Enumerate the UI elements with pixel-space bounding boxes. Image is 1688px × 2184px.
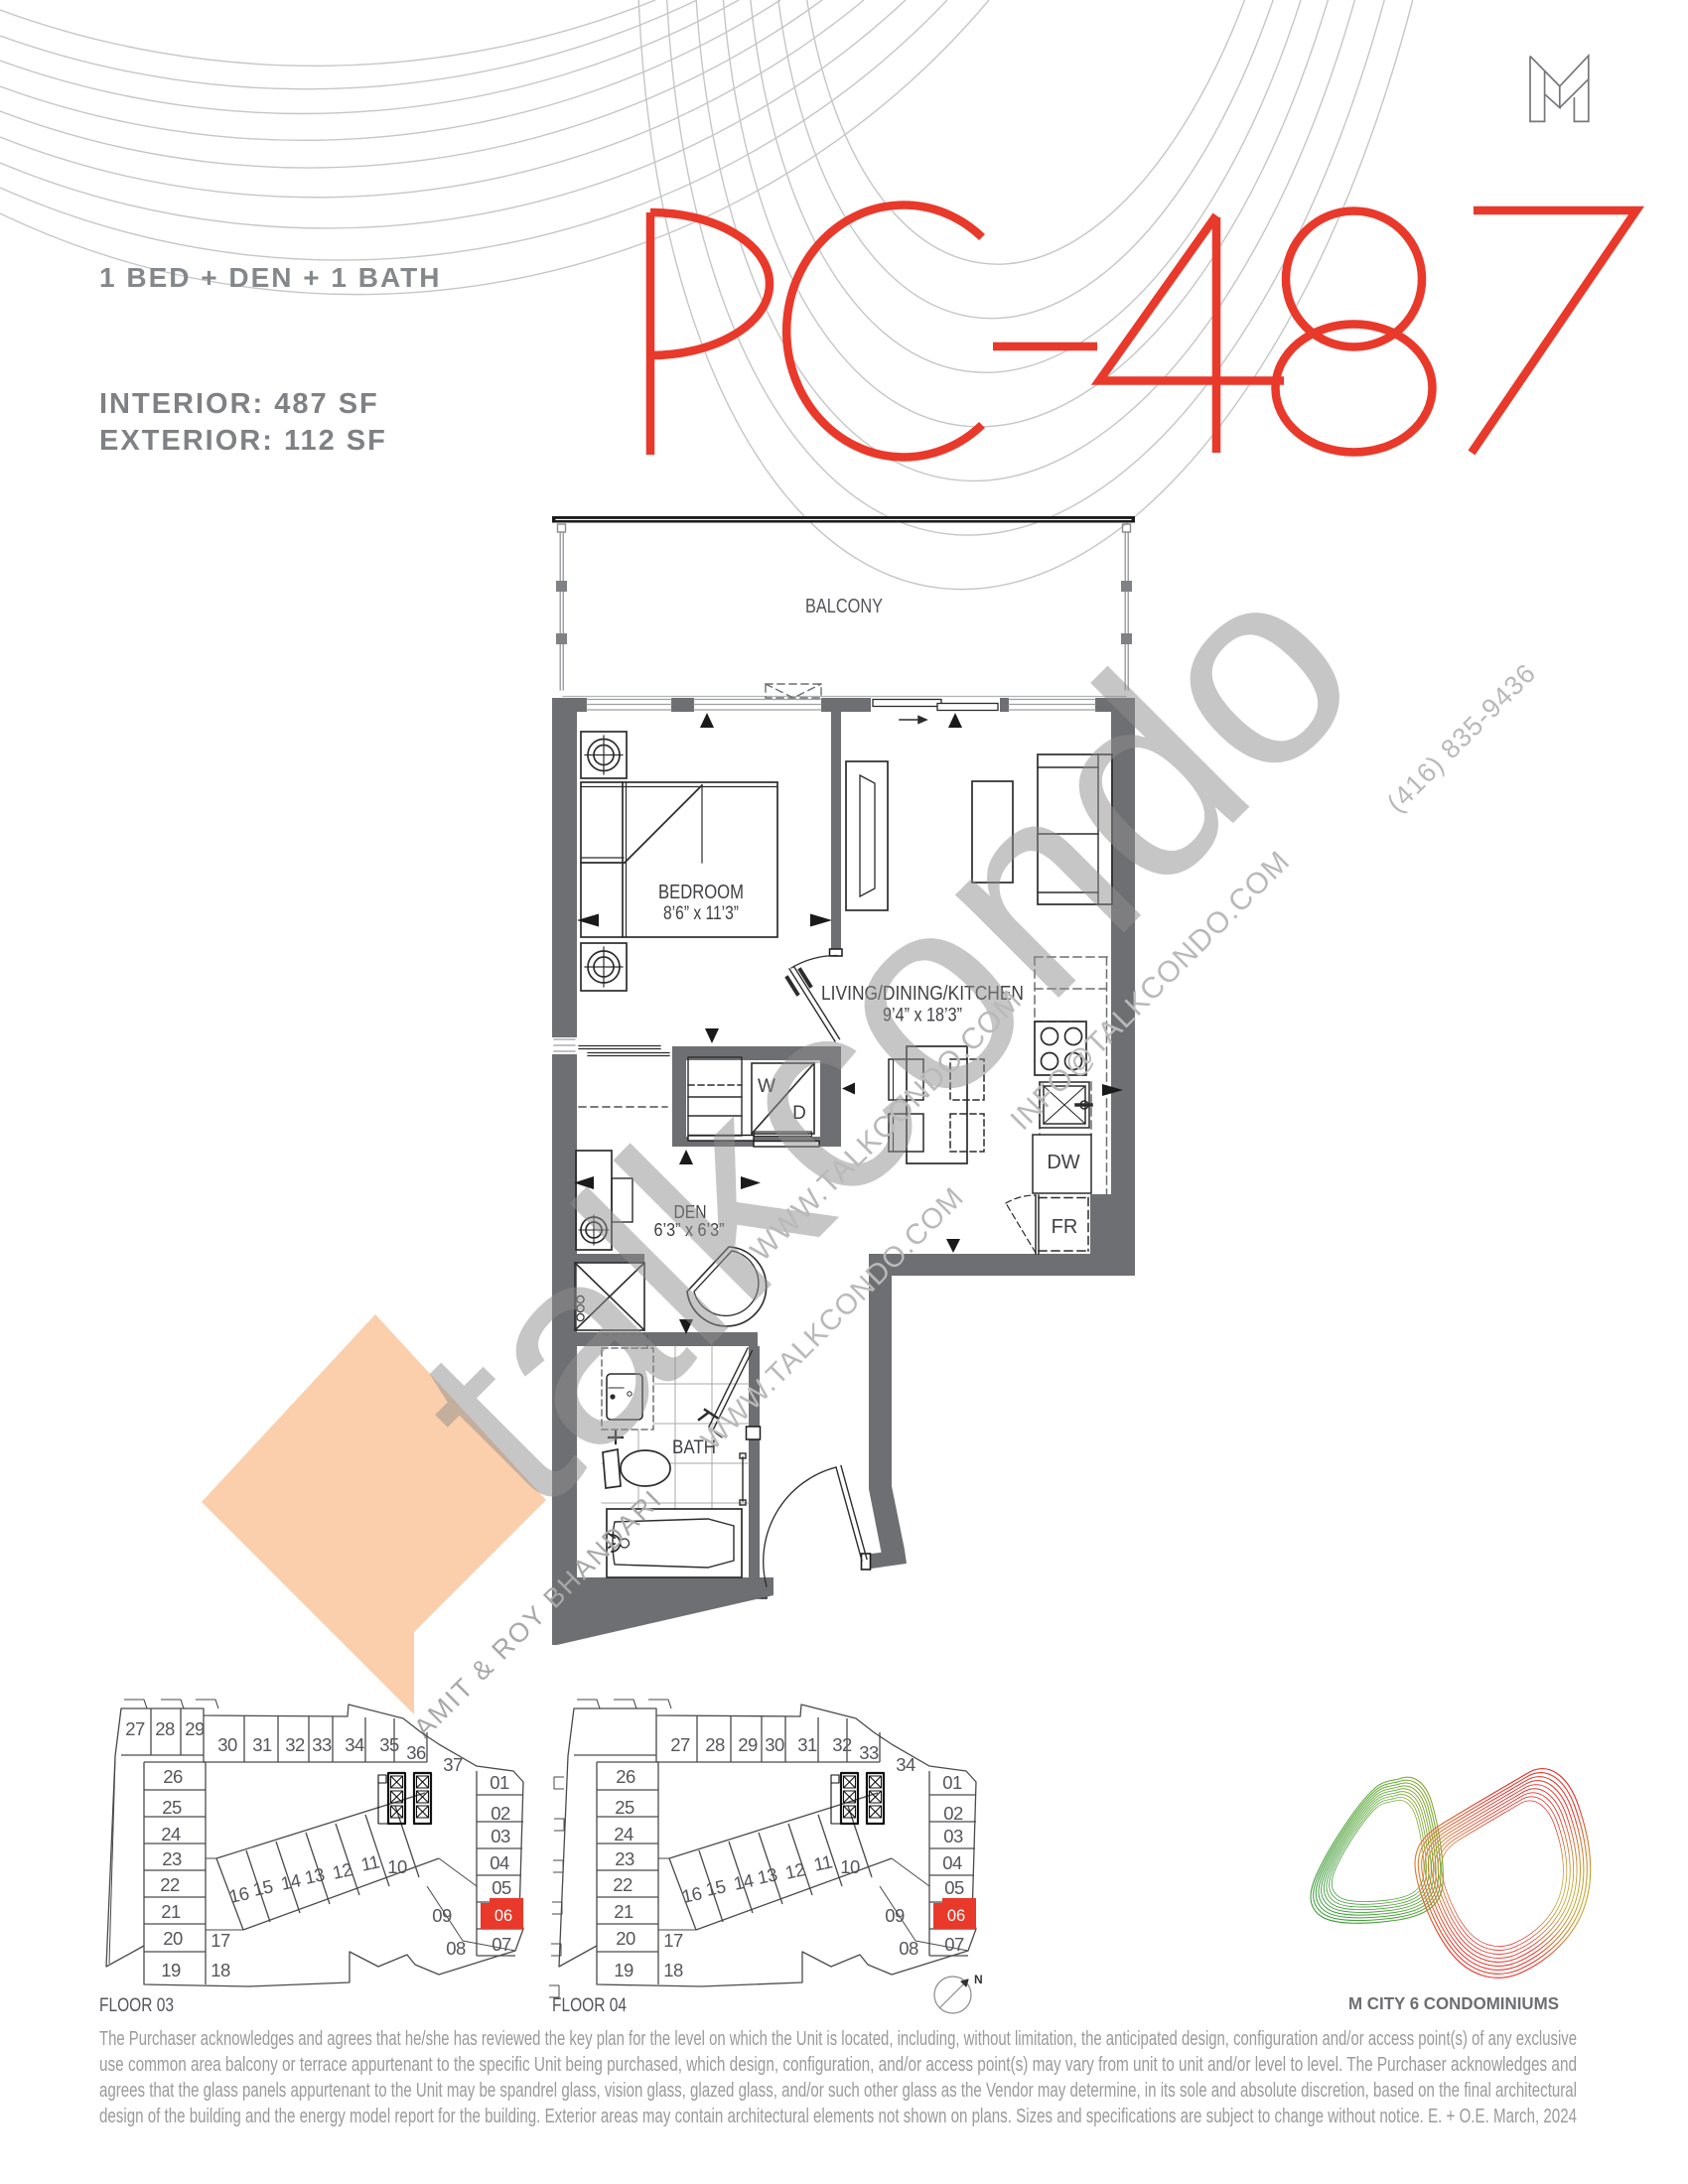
svg-text:21: 21	[614, 1901, 633, 1922]
svg-text:01: 01	[490, 1772, 509, 1793]
svg-text:use common area balcony or ter: use common area balcony or terrace appur…	[99, 2053, 1577, 2076]
svg-text:agrees that the glass panels a: agrees that the glass panels appurtenant…	[99, 2079, 1577, 2102]
svg-text:27: 27	[670, 1734, 690, 1755]
svg-text:29: 29	[738, 1734, 758, 1755]
svg-text:32: 32	[832, 1734, 852, 1755]
svg-text:8’6” x 11’3”: 8’6” x 11’3”	[663, 902, 739, 924]
svg-text:03: 03	[491, 1826, 510, 1846]
svg-text:19: 19	[614, 1960, 633, 1980]
svg-text:25: 25	[162, 1797, 182, 1818]
svg-text:19: 19	[161, 1960, 181, 1980]
svg-text:07: 07	[944, 1934, 964, 1955]
svg-text:07: 07	[492, 1934, 511, 1955]
svg-text:03: 03	[943, 1826, 963, 1846]
svg-text:34: 34	[345, 1734, 364, 1755]
svg-text:INTERIOR: 487 SF: INTERIOR: 487 SF	[99, 388, 379, 420]
svg-text:26: 26	[616, 1766, 635, 1787]
svg-text:25: 25	[615, 1797, 634, 1818]
svg-text:28: 28	[155, 1718, 175, 1739]
svg-text:31: 31	[252, 1734, 272, 1755]
svg-text:22: 22	[613, 1874, 633, 1895]
svg-text:N: N	[974, 1973, 983, 1986]
svg-text:EXTERIOR: 112 SF: EXTERIOR: 112 SF	[99, 425, 387, 457]
svg-text:BALCONY: BALCONY	[805, 596, 883, 617]
svg-text:30: 30	[765, 1734, 784, 1755]
svg-text:18: 18	[211, 1960, 230, 1980]
svg-text:FLOOR 04: FLOOR 04	[552, 1994, 627, 2016]
svg-text:29: 29	[185, 1718, 205, 1739]
svg-text:37: 37	[443, 1754, 463, 1775]
svg-text:34: 34	[896, 1754, 915, 1775]
svg-text:22: 22	[160, 1874, 180, 1895]
svg-text:design of the building and the: design of the building and the energy mo…	[99, 2105, 1577, 2127]
svg-text:05: 05	[944, 1877, 964, 1898]
svg-text:The Purchaser acknowledges and: The Purchaser acknowledges and agrees th…	[99, 2027, 1577, 2050]
svg-text:27: 27	[125, 1718, 145, 1739]
svg-text:05: 05	[492, 1877, 511, 1898]
svg-text:36: 36	[406, 1742, 426, 1763]
svg-text:26: 26	[163, 1766, 183, 1787]
svg-text:02: 02	[491, 1803, 510, 1824]
svg-text:20: 20	[616, 1928, 635, 1949]
svg-text:33: 33	[312, 1734, 332, 1755]
svg-text:32: 32	[285, 1734, 305, 1755]
svg-text:28: 28	[705, 1734, 725, 1755]
svg-text:09: 09	[885, 1905, 905, 1926]
svg-text:10: 10	[840, 1856, 860, 1877]
svg-text:21: 21	[161, 1901, 181, 1922]
svg-text:18: 18	[663, 1960, 683, 1980]
svg-text:33: 33	[859, 1742, 879, 1763]
svg-text:08: 08	[899, 1938, 918, 1959]
svg-text:20: 20	[163, 1928, 183, 1949]
svg-text:DW: DW	[1047, 1152, 1079, 1173]
svg-text:04: 04	[942, 1852, 962, 1873]
svg-text:17: 17	[211, 1930, 230, 1951]
svg-text:10: 10	[387, 1856, 407, 1877]
svg-text:35: 35	[379, 1734, 399, 1755]
svg-text:02: 02	[943, 1803, 963, 1824]
svg-text:24: 24	[161, 1824, 181, 1844]
svg-text:08: 08	[446, 1938, 466, 1959]
svg-text:M CITY 6 CONDOMINIUMS: M CITY 6 CONDOMINIUMS	[1348, 1993, 1559, 2013]
svg-text:30: 30	[217, 1734, 237, 1755]
svg-text:FLOOR 03: FLOOR 03	[99, 1994, 174, 2016]
svg-text:31: 31	[797, 1734, 817, 1755]
svg-text:06: 06	[494, 1907, 512, 1925]
svg-text:17: 17	[663, 1930, 683, 1951]
svg-text:23: 23	[162, 1848, 182, 1869]
svg-text:FR: FR	[1052, 1216, 1078, 1238]
svg-text:04: 04	[490, 1852, 509, 1873]
svg-text:09: 09	[432, 1905, 452, 1926]
svg-text:06: 06	[947, 1907, 965, 1925]
svg-text:01: 01	[942, 1772, 962, 1793]
svg-text:23: 23	[615, 1848, 634, 1869]
svg-text:BEDROOM: BEDROOM	[658, 881, 744, 903]
svg-text:24: 24	[614, 1824, 633, 1844]
svg-text:1 BED + DEN + 1 BATH: 1 BED + DEN + 1 BATH	[99, 262, 441, 293]
